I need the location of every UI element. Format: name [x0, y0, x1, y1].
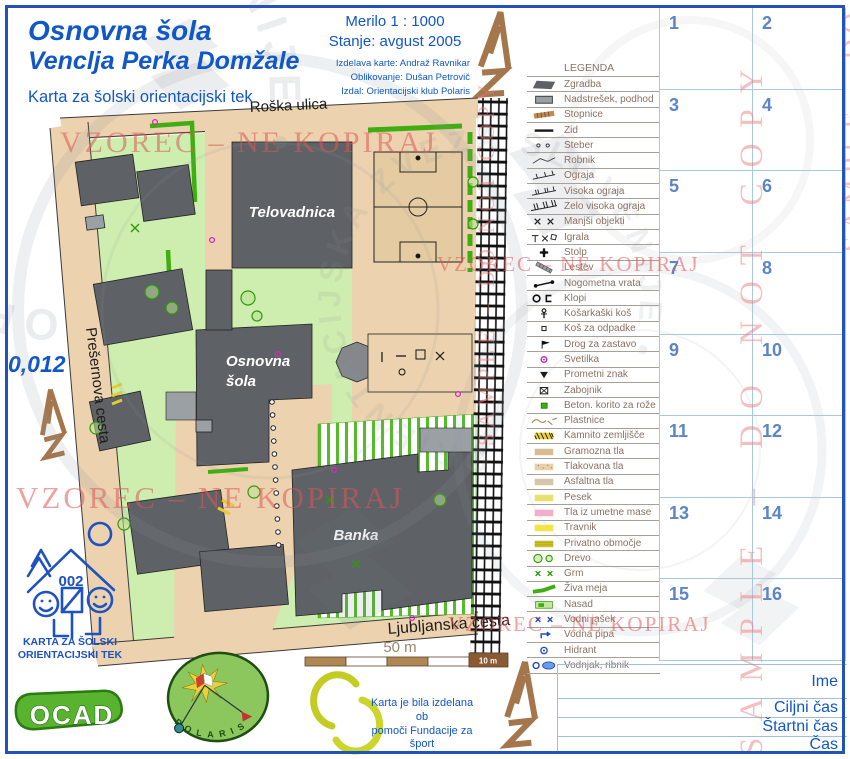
legend-label: Tlakovana tla — [563, 461, 623, 472]
legend: LEGENDA ZgradbaNadstrešek, podhodStopnic… — [527, 59, 660, 674]
curb-icon — [527, 154, 563, 167]
legend-label: Zabojnik — [563, 385, 602, 396]
cell-number: 6 — [762, 176, 772, 197]
emblem-caption-line1: KARTA ZA ŠOLSKI — [8, 636, 132, 649]
cell-number: 8 — [762, 258, 772, 279]
ocad-logo: OCAD — [16, 691, 122, 730]
ocad-label: OCAD — [30, 700, 115, 730]
legend-label: Lestev — [563, 262, 593, 273]
legend-label: Nasad — [563, 599, 593, 610]
legend-item: Lestev — [527, 261, 660, 276]
private-area-icon — [527, 537, 563, 550]
basketball-hoop-icon — [527, 307, 563, 320]
legend-item: Grm — [527, 567, 660, 582]
form-label: Čas — [810, 736, 838, 754]
page-title-line2: Venclja Perka Domžale — [28, 48, 299, 76]
flagpole-icon — [527, 338, 563, 351]
legend-item: Kamnito zemljišče — [527, 429, 660, 444]
legend-item: Stopnice — [527, 108, 660, 123]
cell-number: 14 — [762, 503, 782, 524]
benches-icon — [527, 292, 563, 305]
fence-very-high-icon — [527, 200, 563, 213]
map-info-block: Merilo 1 : 1000 Stanje: avgust 2005 Izde… — [320, 12, 470, 98]
credit-line: Izdal: Orientacijski klub Polaris — [320, 85, 470, 99]
emblem-caption-line2: ORIENTACIJSKI TEK — [8, 649, 132, 662]
cell-number: 7 — [669, 258, 679, 279]
legend-label: Svetilka — [563, 354, 599, 365]
legend-label: Hidrant — [563, 645, 596, 656]
legend-item: Pesek — [527, 490, 660, 505]
control-card-cell: 14 — [753, 498, 846, 580]
legend-item: Svetilka — [527, 352, 660, 367]
legend-item: Igrala — [527, 230, 660, 245]
legend-item: Beton. korito za rože — [527, 398, 660, 413]
map-status-text: Stanje: avgust 2005 — [320, 32, 470, 52]
legend-label: Živa meja — [563, 583, 607, 594]
legend-label: Manjši objekti — [563, 216, 625, 227]
legend-item: Zabojnik — [527, 383, 660, 398]
goal-icon — [527, 277, 563, 290]
control-card-cell: 13 — [660, 498, 753, 580]
waste-bin-icon — [527, 322, 563, 335]
control-card-cell: 11 — [660, 416, 753, 498]
gravel-icon — [527, 445, 563, 458]
map-scale-text: Merilo 1 : 1000 — [320, 12, 470, 32]
asphalt-icon — [527, 475, 563, 488]
map-sheet: Roška ulica Prešernova cesta Ljubljanska… — [0, 0, 850, 759]
cell-number: 11 — [669, 421, 688, 442]
legend-label: Nadstrešek, podhod — [563, 94, 654, 105]
contours-icon — [527, 414, 563, 427]
legend-label: Košarkaški koš — [563, 308, 631, 319]
legend-label: Privatno območje — [563, 538, 641, 549]
legend-label: Vodna pipa — [563, 629, 614, 640]
legend-item: Gramozna tla — [527, 444, 660, 459]
legend-item: Vodni jašek — [527, 612, 660, 627]
label-school-1: Osnovna — [226, 353, 290, 370]
control-card-cell: 15 — [660, 579, 753, 661]
legend-item: Košarkaški koš — [527, 306, 660, 321]
tower-icon — [527, 246, 563, 259]
polaris-compass: POLARIS — [164, 648, 273, 746]
legend-label: Prometni znak — [563, 369, 628, 380]
control-card-cell: 2 — [753, 8, 846, 90]
emblem-caption: KARTA ZA ŠOLSKI ORIENTACIJSKI TEK — [8, 636, 132, 662]
legend-item: Nogometna vrata — [527, 276, 660, 291]
emblem-number: 002 — [58, 573, 83, 590]
legend-item: Robnik — [527, 153, 660, 168]
playground-icon — [527, 231, 563, 244]
paving-icon — [527, 460, 563, 473]
legend-label: Steber — [563, 140, 593, 151]
plantation-icon — [527, 598, 563, 611]
legend-item: Asfaltna tla — [527, 475, 660, 490]
legend-label: Igrala — [563, 232, 589, 243]
legend-item: Klopi — [527, 291, 660, 306]
form-label: Štartni čas — [762, 718, 838, 736]
cell-number: 1 — [669, 13, 679, 34]
control-card-cell: 10 — [753, 335, 846, 417]
legend-rows: ZgradbaNadstrešek, podhodStopniceZidSteb… — [527, 77, 660, 674]
legend-heading: LEGENDA — [527, 59, 660, 77]
legend-label: Zelo visoka ograja — [563, 201, 645, 212]
control-card-cell: 1 — [660, 8, 753, 90]
pillar-icon — [527, 139, 563, 152]
control-card: 12345678910111213141516 — [659, 8, 846, 661]
cell-number: 2 — [762, 13, 772, 34]
cell-number: 10 — [762, 340, 782, 361]
wall-icon — [527, 124, 563, 137]
legend-item: Koš za odpadke — [527, 322, 660, 337]
legend-item: Zid — [527, 123, 660, 138]
funding-line2: pomoči Fundacije za šport — [366, 725, 478, 753]
legend-label: Vodni jašek — [563, 614, 615, 625]
control-card-cell: 7 — [660, 253, 753, 335]
legend-item: Nasad — [527, 597, 660, 612]
control-card-cell: 8 — [753, 253, 846, 335]
cell-number: 13 — [669, 503, 689, 524]
control-card-cell: 12 — [753, 416, 846, 498]
planter-icon — [527, 399, 563, 412]
map-credits: Izdelava karte: Andraž Ravnikar Oblikova… — [320, 57, 470, 98]
scale-segment-label: 10 m — [479, 657, 497, 666]
legend-item: Vodna pipa — [527, 628, 660, 643]
legend-item: Tla iz umetne mase — [527, 505, 660, 520]
form-row: Čas — [558, 737, 847, 753]
cell-number: 16 — [762, 584, 782, 605]
legend-item: Prometni znak — [527, 368, 660, 383]
legend-label: Koš za odpadke — [563, 323, 636, 334]
legend-label: Stopnice — [563, 109, 603, 120]
form-label: Ciljni čas — [774, 699, 838, 717]
form-row: Ciljni čas — [558, 699, 847, 718]
page-title: Osnovna šola — [28, 16, 299, 45]
control-card-cell: 3 — [660, 90, 753, 172]
synthetic-icon — [527, 506, 563, 519]
traffic-sign-icon — [527, 368, 563, 381]
legend-item: Drevo — [527, 551, 660, 566]
legend-label: Zid — [563, 125, 578, 136]
legend-item: Plastnice — [527, 414, 660, 429]
small-objects-icon — [527, 215, 563, 228]
legend-label: Asfaltna tla — [563, 476, 613, 487]
stairs-icon — [527, 108, 563, 121]
cell-number: 3 — [669, 95, 679, 116]
control-card-cell: 16 — [753, 579, 846, 661]
sand-icon — [527, 491, 563, 504]
legend-label: Robnik — [563, 155, 595, 166]
building-icon — [527, 78, 563, 91]
legend-label: Travnik — [563, 522, 596, 533]
legend-label: Beton. korito za rože — [563, 400, 656, 411]
form-row: Ime — [558, 665, 847, 699]
water-shaft-icon — [527, 613, 563, 626]
bush-icon — [527, 567, 563, 580]
legend-label: Plastnice — [563, 415, 605, 426]
legend-item: Privatno območje — [527, 536, 660, 551]
fence-icon — [527, 169, 563, 182]
control-card-cell: 9 — [660, 335, 753, 417]
title-block: Osnovna šola Venclja Perka Domžale Karta… — [28, 16, 299, 107]
legend-item: Živa meja — [527, 582, 660, 597]
legend-item: Visoka ograja — [527, 184, 660, 199]
fence-high-icon — [527, 185, 563, 198]
legend-label: Nogometna vrata — [563, 278, 641, 289]
legend-label: Kamnito zemljišče — [563, 430, 645, 441]
water-tap-icon — [527, 628, 563, 641]
legend-label: Drog za zastavo — [563, 339, 636, 350]
funding-line1: Karta je bila izdelana ob — [366, 697, 478, 725]
tree-icon — [527, 552, 563, 565]
hydrant-icon — [527, 644, 563, 657]
form-label: Ime — [811, 673, 838, 691]
cell-number: 15 — [669, 584, 689, 605]
control-card-cell: 5 — [660, 171, 753, 253]
legend-label: Stolp — [563, 247, 587, 258]
legend-item: Stolp — [527, 245, 660, 260]
result-form: ImeCiljni časŠtartni časČas — [557, 664, 847, 753]
legend-label: Ograja — [563, 170, 594, 181]
legend-item: Steber — [527, 138, 660, 153]
stony-ground-icon — [527, 429, 563, 442]
lamp-icon — [527, 353, 563, 366]
credit-line: Oblikovanje: Dušan Petrovič — [320, 71, 470, 85]
legend-label: Drevo — [563, 553, 591, 564]
legend-item: Ograja — [527, 169, 660, 184]
label-telovadnica: Telovadnica — [249, 204, 335, 221]
funding-note: Karta je bila izdelana ob pomoči Fundaci… — [366, 697, 478, 752]
legend-item: Manjši objekti — [527, 215, 660, 230]
legend-item: Drog za zastavo — [527, 337, 660, 352]
legend-item: Hidrant — [527, 643, 660, 658]
cell-number: 12 — [762, 421, 782, 442]
control-card-cell: 6 — [753, 171, 846, 253]
cell-number: 5 — [669, 176, 679, 197]
scale-total-label: 50 m — [383, 639, 416, 656]
legend-label: Pesek — [563, 492, 592, 503]
legend-item: Travnik — [527, 521, 660, 536]
legend-label: Zgradba — [563, 79, 601, 90]
cell-number: 9 — [669, 340, 679, 361]
legend-label: Klopi — [563, 293, 586, 304]
cell-number: 4 — [762, 95, 772, 116]
credit-line: Izdelava karte: Andraž Ravnikar — [320, 57, 470, 71]
legend-item: Zelo visoka ograja — [527, 199, 660, 214]
container-icon — [527, 384, 563, 397]
ladder-icon — [527, 261, 563, 274]
legend-label: Grm — [563, 568, 583, 579]
page-subtitle: Karta za šolski orientacijski tek — [28, 88, 299, 107]
legend-label: Gramozna tla — [563, 446, 624, 457]
hedge-icon — [527, 582, 563, 595]
legend-item: Zgradba — [527, 77, 660, 92]
legend-label: Tla iz umetne mase — [563, 507, 651, 518]
legend-label: Visoka ograja — [563, 186, 624, 197]
form-row: Štartni čas — [558, 718, 847, 737]
canopy-icon — [527, 93, 563, 106]
control-card-cell: 4 — [753, 90, 846, 172]
meadow-icon — [527, 521, 563, 534]
legend-item: Nadstrešek, podhod — [527, 92, 660, 107]
legend-item: Tlakovana tla — [527, 459, 660, 474]
label-school-2: šola — [226, 373, 256, 390]
